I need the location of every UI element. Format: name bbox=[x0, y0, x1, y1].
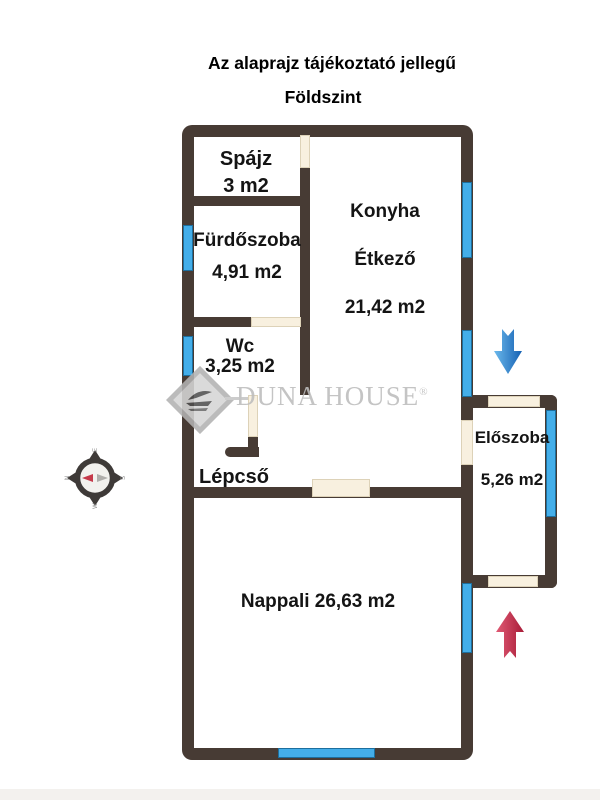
window-bathroom bbox=[183, 225, 193, 271]
door-opening-hall-to-kitchen bbox=[461, 420, 473, 465]
compass-letter-bottom: W bbox=[93, 503, 99, 509]
entrance-down-arrow-icon bbox=[493, 328, 523, 375]
room-label-bathroom: Fürdőszoba 4,91 m2 bbox=[193, 225, 301, 289]
door-opening-wc bbox=[251, 317, 301, 327]
compass-letter-top: E bbox=[93, 448, 99, 452]
window-wc bbox=[183, 336, 193, 376]
compass-icon: N S E W bbox=[64, 447, 126, 509]
window-kitchen-lower bbox=[462, 330, 472, 397]
floor-title: Földszint bbox=[285, 87, 362, 108]
wall-stairs-stub-horizontal bbox=[225, 447, 259, 457]
room-name: Nappali 26,63 m2 bbox=[241, 589, 395, 615]
plan-disclaimer-title: Az alaprajz tájékoztató jellegű bbox=[208, 53, 456, 74]
room-name: Konyha bbox=[345, 188, 425, 236]
room-label-kitchen: Konyha Étkező 21,42 m2 bbox=[345, 188, 425, 332]
door-opening-hall-bottom bbox=[488, 576, 538, 587]
compass-letter-left: N bbox=[65, 476, 71, 480]
building-outline bbox=[182, 125, 473, 760]
room-name: Előszoba bbox=[475, 417, 550, 459]
compass-letter-right: S bbox=[121, 476, 126, 480]
registered-mark: ® bbox=[419, 386, 428, 398]
room-name: Spájz bbox=[220, 146, 272, 173]
floorplan-image: Az alaprajz tájékoztató jellegű Földszin… bbox=[0, 0, 600, 800]
watermark-brand-text: DUNA HOUSE® bbox=[236, 381, 429, 412]
room-area: 4,91 m2 bbox=[193, 257, 301, 289]
window-living-room-right bbox=[462, 583, 472, 653]
room-label-hall: Előszoba 5,26 m2 bbox=[475, 417, 550, 501]
room-name: Lépcső bbox=[199, 464, 269, 490]
room-label-living-room: Nappali 26,63 m2 bbox=[241, 589, 395, 615]
room-label-wc: Wc 3,25 m2 bbox=[205, 337, 275, 377]
door-opening-pantry bbox=[300, 135, 310, 168]
brand-name: DUNA HOUSE bbox=[236, 381, 419, 411]
door-opening-hall-top bbox=[488, 396, 540, 407]
image-bottom-strip bbox=[0, 789, 600, 800]
room-area: 3,25 m2 bbox=[205, 357, 275, 377]
room-label-pantry: Spájz 3 m2 bbox=[220, 146, 272, 200]
room-label-stairs: Lépcső bbox=[199, 464, 269, 490]
room-name: Wc bbox=[205, 337, 275, 357]
room-name-2: Étkező bbox=[345, 236, 425, 284]
logo-ship-icon bbox=[182, 384, 218, 414]
room-name: Fürdőszoba bbox=[193, 225, 301, 257]
room-area: 21,42 m2 bbox=[345, 284, 425, 332]
room-area: 3 m2 bbox=[220, 173, 272, 200]
wall-kitchen-divider bbox=[300, 166, 310, 395]
room-area: 5,26 m2 bbox=[475, 459, 550, 501]
window-living-room-bottom bbox=[278, 748, 375, 758]
window-kitchen-upper bbox=[462, 182, 472, 258]
door-opening-living-room bbox=[312, 479, 370, 497]
entrance-up-arrow-icon bbox=[495, 611, 525, 659]
